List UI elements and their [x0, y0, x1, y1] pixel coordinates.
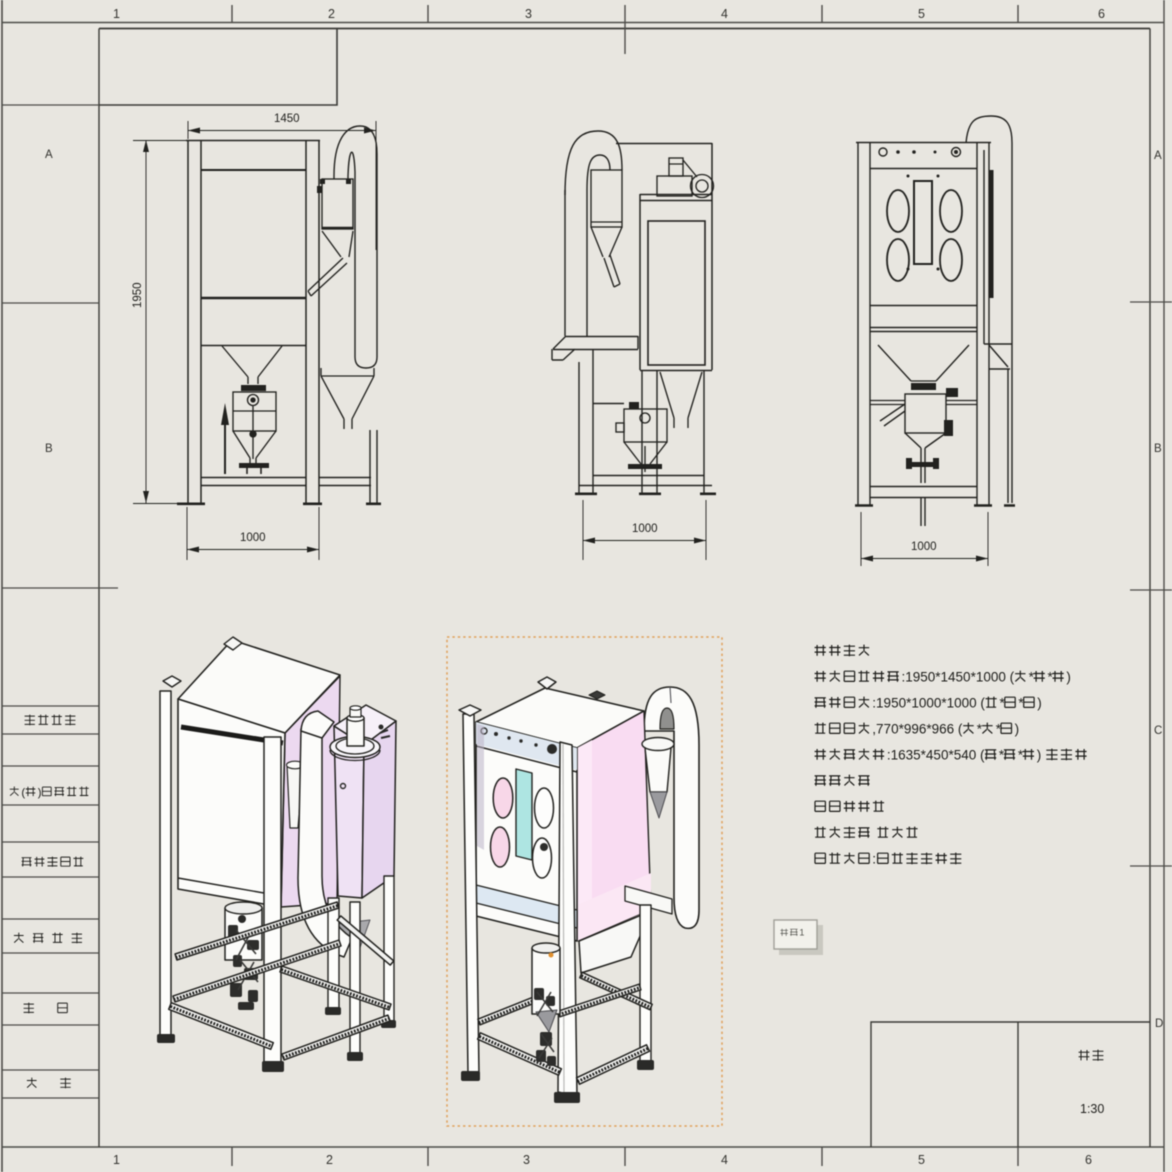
- svg-text:1450: 1450: [274, 113, 300, 125]
- svg-text:6: 6: [1085, 1153, 1092, 1167]
- svg-text:1: 1: [113, 1153, 120, 1167]
- svg-text:1000: 1000: [240, 532, 266, 544]
- svg-text:1000: 1000: [632, 523, 658, 535]
- svg-text:1: 1: [799, 928, 804, 938]
- svg-text:5: 5: [918, 1153, 925, 1167]
- svg-text:3: 3: [525, 7, 532, 21]
- svg-text::1950*1000*1000 (: :1950*1000*1000 (: [872, 696, 985, 711]
- svg-text:A: A: [45, 149, 53, 161]
- svg-text:): ): [38, 787, 42, 799]
- svg-text:): ): [1037, 696, 1042, 711]
- svg-text:4: 4: [721, 7, 728, 21]
- svg-text::: :: [872, 852, 876, 867]
- svg-text:1000: 1000: [911, 541, 937, 553]
- svg-text:1: 1: [113, 7, 120, 21]
- svg-text:*: *: [1029, 670, 1035, 685]
- svg-text:A: A: [1154, 150, 1162, 162]
- svg-text:C: C: [1154, 725, 1162, 737]
- svg-text:): ): [1066, 670, 1071, 685]
- svg-text:(: (: [21, 787, 25, 799]
- svg-text:): ): [1015, 722, 1020, 737]
- svg-text:1950: 1950: [132, 282, 144, 308]
- svg-text:2: 2: [326, 1153, 333, 1167]
- svg-text:*: *: [977, 722, 983, 737]
- svg-text:5: 5: [918, 7, 925, 21]
- svg-text:B: B: [45, 443, 53, 455]
- svg-text:2: 2: [328, 7, 335, 21]
- svg-text:3: 3: [523, 1153, 530, 1167]
- svg-text:B: B: [1154, 443, 1162, 455]
- svg-text::1950*1450*1000 (: :1950*1450*1000 (: [902, 670, 1015, 685]
- svg-text:*: *: [1018, 748, 1024, 763]
- svg-text:1:30: 1:30: [1080, 1102, 1104, 1116]
- svg-text:,770*996*966 (: ,770*996*966 (: [872, 722, 963, 737]
- svg-text:): ): [1037, 748, 1042, 763]
- svg-text:*: *: [1048, 670, 1054, 685]
- svg-text:D: D: [1155, 1018, 1163, 1030]
- svg-text:4: 4: [721, 1153, 728, 1167]
- svg-text::1635*450*540 (: :1635*450*540 (: [887, 748, 985, 763]
- svg-text:6: 6: [1098, 7, 1105, 21]
